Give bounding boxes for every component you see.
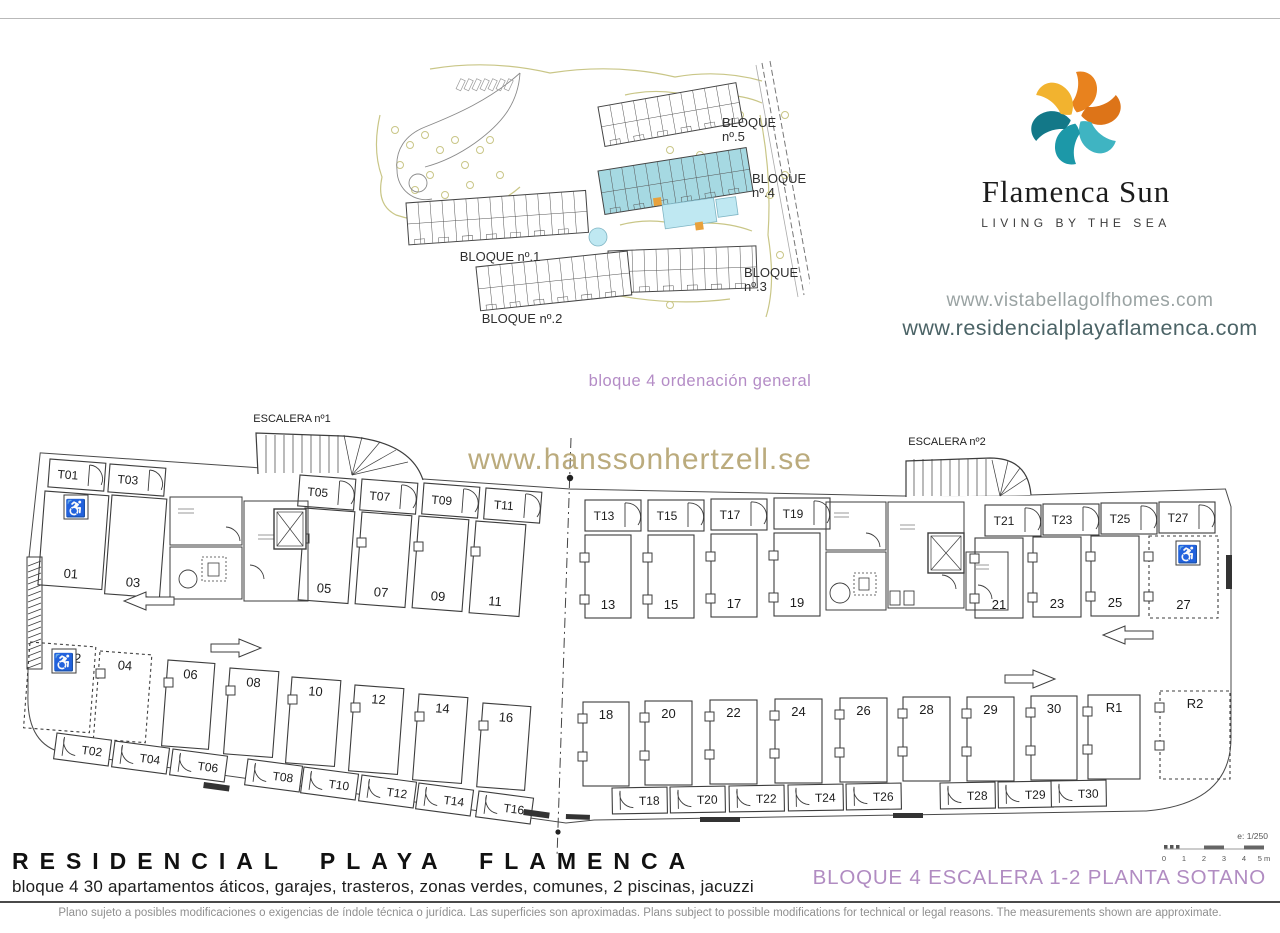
storage-label: T30	[1078, 787, 1099, 801]
storage-label: T16	[503, 801, 526, 818]
jacuzzi-icon	[695, 221, 704, 230]
door-marker	[643, 595, 652, 604]
scale-label: e: 1/250	[1237, 831, 1268, 841]
label-text: ♿	[53, 652, 74, 672]
door-marker	[1155, 703, 1164, 712]
storage-label: T23	[1052, 513, 1073, 527]
stall-label: 16	[498, 709, 514, 725]
door-marker	[640, 713, 649, 722]
storage-room: T17	[711, 499, 767, 530]
door-marker	[770, 749, 779, 758]
stall-label: 27	[1176, 597, 1190, 612]
handicap-icon: ♿	[52, 649, 76, 673]
door-marker	[1083, 745, 1092, 754]
storage-room: T23	[1043, 504, 1099, 535]
disclaimer-text: Plano sujeto a posibles modificaciones o…	[0, 907, 1280, 919]
brand-name: Flamenca Sun	[950, 174, 1202, 210]
brand-logo: Flamenca Sun LIVING BY THE SEA	[950, 68, 1202, 230]
door-marker	[415, 712, 424, 721]
door-marker	[580, 553, 589, 562]
parking-mark	[488, 79, 497, 91]
storage-room: T19	[774, 498, 830, 529]
url-residencial: www.residencialplayaflamenca.com	[880, 316, 1280, 342]
door-marker	[1144, 592, 1153, 601]
project-title: RESIDENCIAL PLAYA FLAMENCA	[12, 848, 696, 875]
stall-label: 13	[601, 597, 615, 612]
tree-icon	[397, 162, 404, 169]
sheet-title: BLOQUE 4 ESCALERA 1-2 PLANTA SOTANO	[813, 866, 1266, 890]
storage-label: T28	[967, 789, 988, 803]
site-block-label: nº.3	[744, 279, 767, 294]
storage-label: T22	[756, 792, 777, 806]
door-marker	[471, 547, 480, 556]
door-marker	[1028, 553, 1037, 562]
centerline-dot	[555, 829, 560, 834]
storage-room: T15	[648, 500, 704, 531]
door-marker	[226, 686, 235, 695]
storage-label: T18	[639, 794, 660, 808]
escalera-2-label: ESCALERA nº2	[908, 436, 985, 448]
storage-label: T04	[139, 751, 162, 768]
url-vistabella: www.vistabellagolfhomes.com	[880, 290, 1280, 313]
door-marker	[414, 542, 423, 551]
parking-mark	[480, 79, 489, 91]
tree-icon	[442, 192, 449, 199]
tree-icon	[497, 172, 504, 179]
wall-segment	[1226, 555, 1232, 589]
tree-icon	[477, 147, 484, 154]
brand-tagline: LIVING BY THE SEA	[950, 216, 1202, 230]
stall-label: 14	[435, 700, 451, 716]
elevator-icon	[274, 509, 306, 549]
storage-room: T18	[612, 787, 667, 814]
stall-label: 03	[125, 574, 141, 590]
storage-label: T10	[328, 777, 351, 794]
door-marker	[351, 703, 360, 712]
storage-room: T27	[1159, 502, 1215, 533]
scale-tick: 4	[1242, 854, 1246, 863]
stall-label: 19	[790, 595, 804, 610]
escalera-1-label: ESCALERA nº1	[253, 413, 330, 425]
storage-label: T25	[1110, 512, 1131, 526]
stall-label: 22	[726, 705, 740, 720]
door-marker	[1026, 746, 1035, 755]
door-marker	[1086, 552, 1095, 561]
tree-icon	[467, 182, 474, 189]
tree-icon	[667, 302, 674, 309]
storage-room: T13	[585, 500, 641, 531]
door-marker	[970, 554, 979, 563]
site-block-label: BLOQUE	[752, 171, 807, 186]
storage-room: T24	[788, 784, 843, 811]
door-marker	[357, 538, 366, 547]
pinwheel-logo-icon	[1026, 68, 1126, 168]
storage-room: T22	[729, 785, 784, 812]
scale-tick: 3	[1222, 854, 1226, 863]
tree-icon	[782, 112, 789, 119]
stall-label: 23	[1050, 596, 1064, 611]
storage-label: T09	[431, 493, 453, 509]
scale-tick: 5 m	[1258, 854, 1271, 863]
site-block-label: nº.4	[752, 185, 775, 200]
elevator-icon	[928, 533, 964, 573]
storage-room: T29	[998, 781, 1053, 808]
door-marker	[835, 748, 844, 757]
pinwheel-petal	[1055, 124, 1080, 165]
storage-room: T03	[108, 464, 166, 496]
door-marker	[705, 750, 714, 759]
pinwheel-petal	[1072, 72, 1097, 113]
stall-label: 04	[117, 657, 133, 673]
site-block-label: BLOQUE nº.1	[460, 249, 541, 264]
handicap-icon: ♿	[1176, 541, 1200, 565]
scale-bar: e: 1/250012345 m	[1162, 831, 1270, 863]
stall-label: 17	[727, 596, 741, 611]
storage-room: T20	[670, 786, 725, 813]
door-marker	[1144, 552, 1153, 561]
tree-icon	[427, 172, 434, 179]
storage-room: T11	[484, 488, 542, 523]
storage-label: T19	[783, 507, 804, 521]
site-block-label: BLOQUE nº.2	[482, 311, 563, 326]
wall-segment	[566, 814, 590, 820]
door-marker	[769, 593, 778, 602]
door-marker	[1086, 592, 1095, 601]
storage-label: T07	[369, 489, 391, 505]
handicap-icon: ♿	[64, 495, 88, 519]
door-marker	[578, 714, 587, 723]
site-block	[406, 190, 588, 244]
door-marker	[705, 712, 714, 721]
stall-label: 15	[664, 597, 678, 612]
door-marker	[770, 711, 779, 720]
door-marker	[970, 594, 979, 603]
stall-label: 26	[856, 703, 870, 718]
door-marker	[288, 695, 297, 704]
stall-label: 11	[488, 593, 503, 609]
tree-icon	[437, 147, 444, 154]
storage-label: T12	[386, 785, 409, 802]
door-marker	[962, 709, 971, 718]
door-marker	[706, 594, 715, 603]
storage-room: T01	[48, 459, 106, 491]
vegetation-outline	[430, 65, 762, 81]
road-line	[397, 73, 520, 170]
site-plan-drawing: BLOQUEnº.5BLOQUEnº.4BLOQUE nº.1BLOQUEnº.…	[370, 55, 810, 355]
scale-tick: 1	[1182, 854, 1186, 863]
site-block-label: nº.5	[722, 129, 745, 144]
stall-label: 07	[373, 584, 389, 600]
storage-label: T01	[57, 467, 79, 483]
parking-mark	[472, 79, 481, 91]
door-marker	[580, 595, 589, 604]
site-block-label: BLOQUE	[744, 265, 799, 280]
site-plan-caption: bloque 4 ordenación general	[540, 372, 860, 391]
stall-label: 24	[791, 704, 805, 719]
wall-segment	[700, 817, 740, 822]
door-marker	[962, 747, 971, 756]
stall-label: R2	[1187, 696, 1204, 711]
website-urls: www.vistabellagolfhomes.com www.residenc…	[880, 290, 1280, 342]
round-pool	[589, 228, 607, 246]
stall-label: 12	[371, 691, 387, 707]
stall-label: 18	[599, 707, 613, 722]
tree-icon	[777, 252, 784, 259]
plan-sheet-page: BLOQUEnº.5BLOQUEnº.4BLOQUE nº.1BLOQUEnº.…	[0, 0, 1280, 933]
stairs-escalera-2	[906, 458, 1031, 497]
storage-label: T15	[657, 509, 678, 523]
tree-icon	[407, 142, 414, 149]
watermark-text: www.hanssonhertzell.se	[467, 443, 812, 476]
wall-segment	[203, 782, 230, 792]
stall-label: 29	[983, 702, 997, 717]
storage-label: T26	[873, 790, 894, 804]
storage-room: T05	[298, 475, 356, 510]
storage-label: T06	[197, 759, 220, 776]
scale-tick: 0	[1162, 854, 1166, 863]
door-marker	[769, 551, 778, 560]
stall-label: 08	[246, 674, 262, 690]
door-marker	[706, 552, 715, 561]
storage-label: T21	[994, 514, 1015, 528]
wall-segment	[893, 813, 923, 818]
storage-label: T13	[594, 509, 615, 523]
storage-label: T05	[307, 485, 329, 501]
parking-mark	[496, 79, 505, 91]
door-marker	[640, 751, 649, 760]
door-marker	[164, 678, 173, 687]
storage-label: T17	[720, 508, 741, 522]
storage-room: T09	[422, 483, 480, 518]
storage-room: T25	[1101, 503, 1157, 534]
door-marker	[898, 709, 907, 718]
stairs-escalera-1	[256, 433, 423, 480]
storage-label: T29	[1025, 788, 1046, 802]
storage-room: T21	[985, 505, 1041, 536]
stall-label: R1	[1106, 700, 1123, 715]
stall-label: 06	[183, 666, 199, 682]
floor-plan-drawing: ESCALERA nº1ESCALERA nº2T01T03T05T07T09T…	[0, 405, 1280, 870]
door-marker	[835, 710, 844, 719]
stall-label: 28	[919, 702, 933, 717]
storage-room: T26	[846, 783, 901, 810]
storage-room: T07	[360, 479, 418, 514]
stall-label: 20	[661, 706, 675, 721]
door-marker	[898, 747, 907, 756]
stall-label: 05	[316, 580, 332, 596]
tree-icon	[422, 132, 429, 139]
tree-icon	[487, 137, 494, 144]
storage-label: T02	[81, 743, 104, 760]
storage-label: T24	[815, 791, 836, 805]
storage-label: T14	[443, 793, 466, 810]
tree-icon	[392, 127, 399, 134]
tree-icon	[667, 147, 674, 154]
tree-icon	[452, 137, 459, 144]
tree-icon	[462, 162, 469, 169]
stall-label: 25	[1108, 595, 1122, 610]
stall-label: 01	[63, 566, 79, 582]
door-marker	[578, 752, 587, 761]
door-marker	[479, 721, 488, 730]
hatched-wall	[27, 557, 42, 669]
stall-label: 09	[430, 588, 446, 604]
door-marker	[643, 553, 652, 562]
stall-label: 30	[1047, 701, 1061, 716]
door-marker	[1083, 707, 1092, 716]
storage-room: T28	[940, 782, 995, 809]
parking-mark	[464, 79, 473, 91]
project-subtitle: bloque 4 30 apartamentos áticos, garajes…	[12, 877, 754, 897]
jacuzzi-icon	[653, 197, 662, 206]
door-marker	[1026, 708, 1035, 717]
site-block-label: BLOQUE	[722, 115, 777, 130]
stall-label: 10	[308, 683, 324, 699]
storage-label: T11	[493, 498, 514, 513]
parking-mark	[456, 79, 465, 91]
footer-rule	[0, 901, 1280, 903]
storage-label: T08	[272, 769, 295, 786]
door-marker	[1028, 593, 1037, 602]
top-rule	[0, 18, 1280, 19]
door-marker	[96, 669, 105, 678]
storage-label: T27	[1168, 511, 1189, 525]
storage-room: T30	[1051, 780, 1106, 807]
scale-tick: 2	[1202, 854, 1206, 863]
storage-label: T20	[697, 793, 718, 807]
label-text: ♿	[1177, 544, 1198, 564]
label-text: ♿	[65, 498, 86, 518]
door-marker	[1155, 741, 1164, 750]
storage-label: T03	[117, 472, 139, 488]
